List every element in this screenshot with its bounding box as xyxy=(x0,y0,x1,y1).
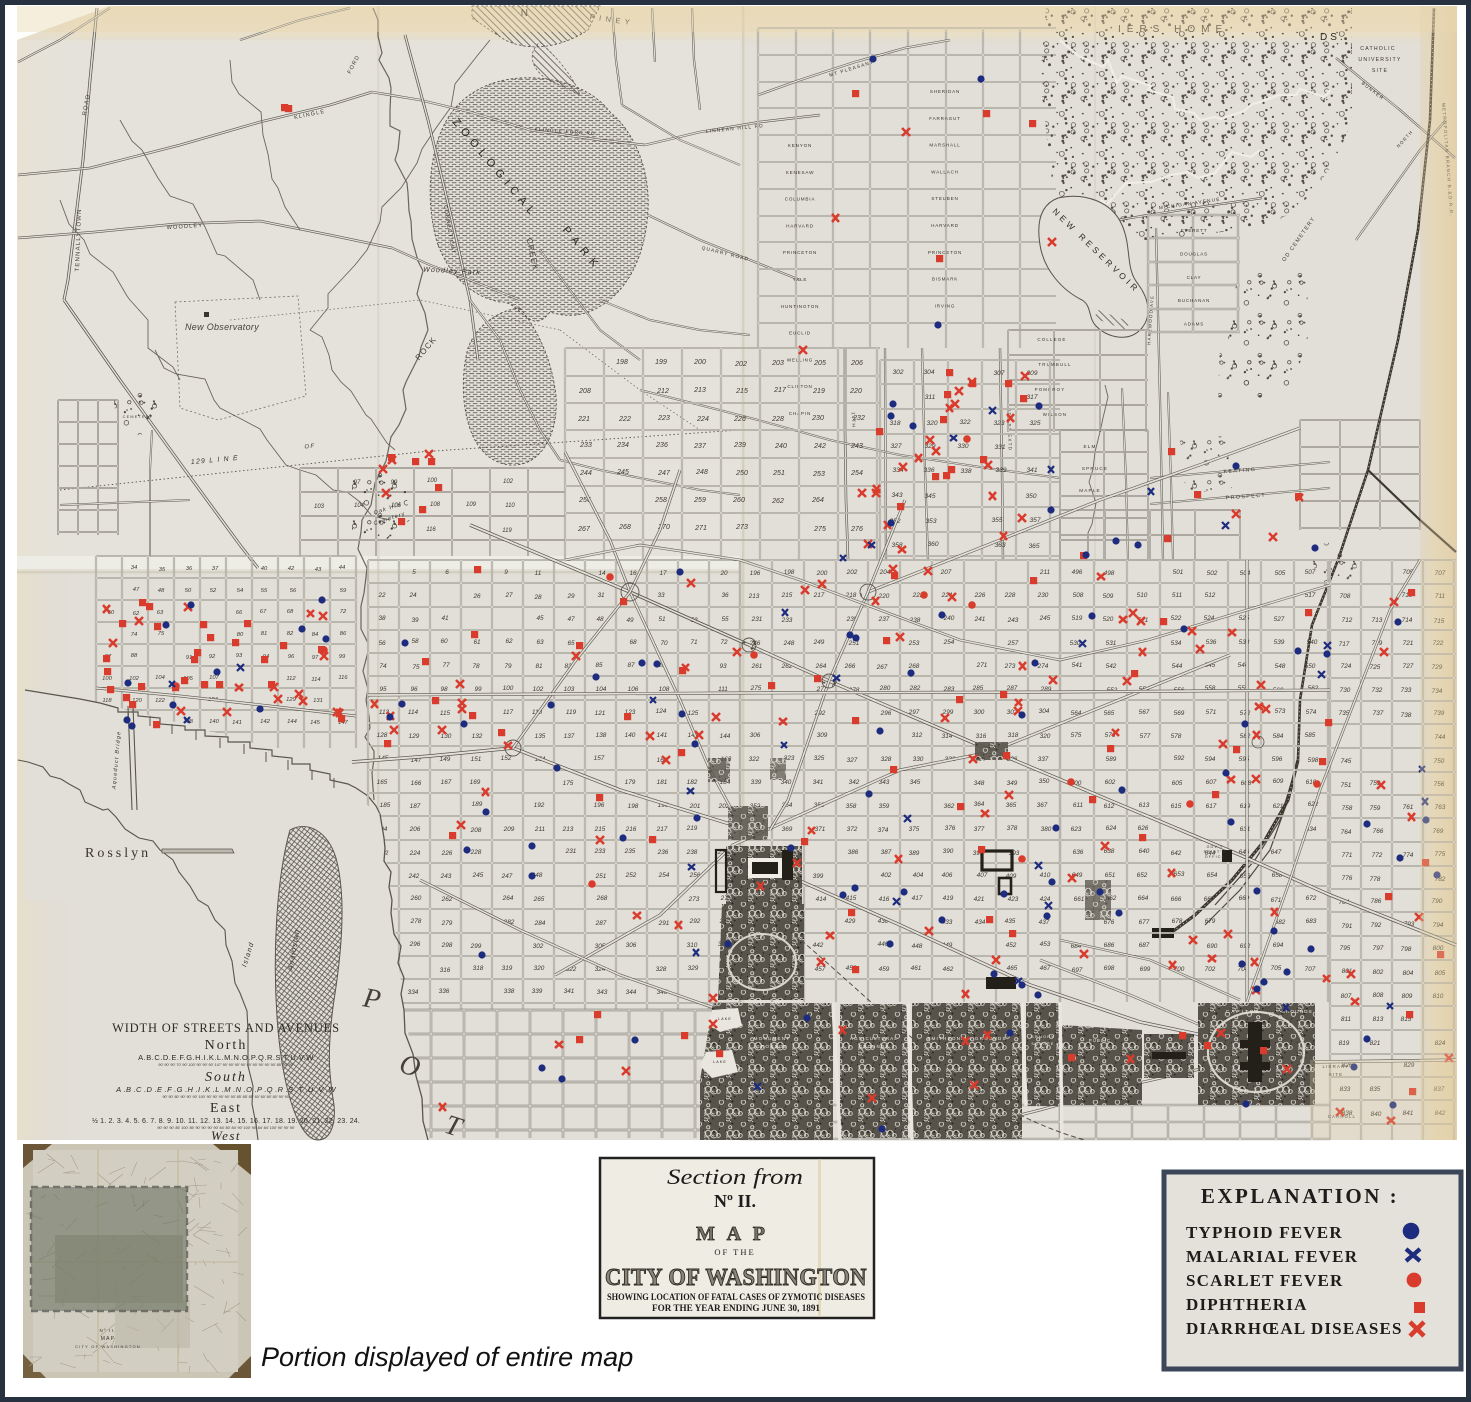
svg-text:90' 90' 80' 90' 90' 90' 100' 9: 90' 90' 80' 90' 90' 90' 100' 90' 90' 90'… xyxy=(162,1095,289,1099)
svg-text:167: 167 xyxy=(441,779,452,786)
svg-text:251: 251 xyxy=(595,873,607,880)
svg-text:Section from: Section from xyxy=(667,1164,803,1189)
svg-text:291: 291 xyxy=(658,920,670,927)
svg-text:234: 234 xyxy=(616,442,629,449)
svg-text:88: 88 xyxy=(131,653,138,659)
svg-text:36: 36 xyxy=(186,566,193,572)
svg-text:621: 621 xyxy=(1273,803,1284,810)
svg-text:DS.: DS. xyxy=(1320,32,1346,43)
svg-text:320: 320 xyxy=(534,965,545,972)
svg-text:166: 166 xyxy=(411,780,422,787)
svg-text:344: 344 xyxy=(626,989,637,996)
svg-text:233: 233 xyxy=(781,617,793,624)
svg-text:329: 329 xyxy=(688,965,699,972)
svg-text:260: 260 xyxy=(732,497,745,504)
svg-text:340: 340 xyxy=(781,779,792,786)
svg-text:672: 672 xyxy=(1306,895,1317,902)
svg-text:345: 345 xyxy=(924,493,935,500)
svg-text:FARRAGUT: FARRAGUT xyxy=(929,116,960,121)
svg-text:304: 304 xyxy=(1039,708,1050,715)
svg-text:615: 615 xyxy=(1171,803,1182,810)
svg-text:41: 41 xyxy=(441,615,449,622)
svg-text:267: 267 xyxy=(876,664,888,671)
svg-text:253: 253 xyxy=(812,471,825,478)
svg-text:55: 55 xyxy=(721,616,729,623)
svg-text:HARVARD: HARVARD xyxy=(931,223,959,228)
svg-text:807: 807 xyxy=(1341,993,1352,1000)
svg-text:631: 631 xyxy=(1240,826,1251,833)
svg-text:254: 254 xyxy=(850,470,863,477)
svg-text:96: 96 xyxy=(288,654,295,660)
svg-text:CATHOLIC: CATHOLIC xyxy=(1360,46,1395,52)
svg-text:302: 302 xyxy=(533,943,544,950)
svg-text:151: 151 xyxy=(471,756,482,763)
svg-text:364: 364 xyxy=(974,801,985,808)
svg-text:207: 207 xyxy=(940,569,952,576)
svg-text:222: 222 xyxy=(618,416,631,423)
svg-text:124: 124 xyxy=(656,708,667,715)
svg-text:264: 264 xyxy=(811,497,824,504)
svg-text:New Observatory: New Observatory xyxy=(185,322,259,332)
svg-text:343: 343 xyxy=(597,989,608,996)
svg-text:34: 34 xyxy=(131,565,137,571)
svg-text:244: 244 xyxy=(579,470,592,477)
svg-text:619: 619 xyxy=(1240,803,1251,810)
svg-text:211: 211 xyxy=(1039,569,1051,576)
svg-text:651: 651 xyxy=(1105,872,1116,879)
svg-text:200: 200 xyxy=(816,570,828,577)
svg-text:125: 125 xyxy=(688,710,699,717)
svg-text:320: 320 xyxy=(1040,733,1051,740)
svg-text:108: 108 xyxy=(430,502,441,508)
svg-text:280: 280 xyxy=(879,685,891,692)
svg-text:152: 152 xyxy=(501,755,512,762)
svg-text:75: 75 xyxy=(158,631,165,637)
svg-text:243: 243 xyxy=(440,873,452,880)
svg-text:531: 531 xyxy=(1106,640,1117,647)
svg-text:209: 209 xyxy=(503,826,515,833)
svg-text:75: 75 xyxy=(412,664,420,671)
svg-text:339: 339 xyxy=(532,988,543,995)
svg-text:404: 404 xyxy=(913,872,924,879)
svg-text:114: 114 xyxy=(311,677,320,683)
svg-text:157: 157 xyxy=(594,755,605,762)
svg-text:573: 573 xyxy=(1275,708,1286,715)
svg-text:809: 809 xyxy=(1402,993,1413,1000)
svg-text:251: 251 xyxy=(772,470,785,477)
svg-text:COLUMBIA: COLUMBIA xyxy=(785,197,816,202)
svg-text:24: 24 xyxy=(408,592,417,599)
svg-text:507: 507 xyxy=(1305,569,1316,576)
svg-text:369: 369 xyxy=(782,826,793,833)
svg-text:135: 135 xyxy=(535,733,546,740)
svg-text:358: 358 xyxy=(846,803,857,810)
svg-text:712: 712 xyxy=(1342,617,1353,624)
svg-text:534: 534 xyxy=(1171,640,1182,647)
svg-text:82: 82 xyxy=(287,631,294,637)
svg-text:336: 336 xyxy=(439,988,450,995)
svg-text:687: 687 xyxy=(1139,942,1150,949)
svg-text:97: 97 xyxy=(312,655,319,661)
svg-text:Portion displayed of entire ma: Portion displayed of entire map xyxy=(261,1342,633,1372)
svg-text:206: 206 xyxy=(409,826,421,833)
svg-text:686: 686 xyxy=(1104,942,1115,949)
svg-text:217: 217 xyxy=(813,592,825,599)
svg-text:233: 233 xyxy=(594,848,606,855)
svg-text:541: 541 xyxy=(1072,662,1083,669)
svg-text:DIPHTHERIA: DIPHTHERIA xyxy=(1186,1295,1308,1314)
svg-text:71: 71 xyxy=(690,639,698,646)
svg-text:85: 85 xyxy=(595,662,603,669)
svg-text:264: 264 xyxy=(502,895,514,902)
svg-text:727: 727 xyxy=(1403,663,1414,670)
svg-text:798: 798 xyxy=(1401,946,1412,953)
svg-text:692: 692 xyxy=(1240,943,1251,950)
svg-text:448: 448 xyxy=(912,943,923,950)
svg-text:213: 213 xyxy=(748,593,760,600)
svg-text:713: 713 xyxy=(1372,617,1383,624)
svg-text:386: 386 xyxy=(848,849,859,856)
svg-text:298: 298 xyxy=(441,942,453,949)
svg-text:ARMORY: ARMORY xyxy=(1031,1035,1055,1039)
svg-text:42: 42 xyxy=(288,566,295,572)
svg-text:287: 287 xyxy=(595,920,607,927)
svg-text:350: 350 xyxy=(1025,493,1036,500)
svg-text:319: 319 xyxy=(502,965,513,972)
svg-text:452: 452 xyxy=(1006,942,1017,949)
svg-text:374: 374 xyxy=(878,827,889,834)
svg-text:378: 378 xyxy=(1007,825,1018,832)
svg-text:348: 348 xyxy=(974,780,985,787)
svg-text:55: 55 xyxy=(261,588,268,594)
svg-text:802: 802 xyxy=(1373,969,1384,976)
svg-text:365: 365 xyxy=(1028,543,1039,550)
svg-text:323: 323 xyxy=(993,420,1004,427)
svg-text:TYPHOID FEVER: TYPHOID FEVER xyxy=(1186,1223,1343,1242)
svg-text:119: 119 xyxy=(502,528,512,534)
svg-text:636: 636 xyxy=(1073,849,1084,856)
svg-text:730: 730 xyxy=(1340,687,1351,694)
svg-text:341: 341 xyxy=(1026,467,1037,474)
svg-text:343: 343 xyxy=(891,492,902,499)
svg-text:699: 699 xyxy=(1140,966,1151,973)
svg-text:62: 62 xyxy=(505,638,513,645)
svg-text:140: 140 xyxy=(209,719,219,725)
svg-text:596: 596 xyxy=(1272,756,1283,763)
svg-text:198: 198 xyxy=(616,359,628,366)
svg-text:306: 306 xyxy=(626,942,637,949)
svg-text:299: 299 xyxy=(470,943,482,950)
svg-text:758: 758 xyxy=(1342,805,1353,812)
svg-text:245: 245 xyxy=(472,872,484,879)
svg-text:328: 328 xyxy=(881,756,892,763)
svg-text:677: 677 xyxy=(1139,919,1150,926)
svg-text:100: 100 xyxy=(503,685,514,692)
svg-text:17: 17 xyxy=(659,570,667,577)
svg-text:100: 100 xyxy=(427,478,438,484)
svg-text:104: 104 xyxy=(596,686,607,693)
svg-text:½ 1. 2. 3. 4. 5. 6. 7. 8. 9. 1: ½ 1. 2. 3. 4. 5. 6. 7. 8. 9. 10. 11. 12.… xyxy=(92,1117,360,1125)
svg-text:103: 103 xyxy=(314,504,325,510)
svg-text:266: 266 xyxy=(844,663,856,670)
svg-text:66: 66 xyxy=(236,610,243,616)
svg-text:WALLACH: WALLACH xyxy=(931,169,959,174)
svg-text:268: 268 xyxy=(618,524,631,531)
svg-text:PRINT'G: PRINT'G xyxy=(1204,850,1227,854)
svg-text:407: 407 xyxy=(977,872,988,879)
svg-text:49: 49 xyxy=(626,617,634,624)
svg-text:259: 259 xyxy=(693,497,706,504)
svg-text:OF THE: OF THE xyxy=(714,1247,755,1257)
svg-text:237: 237 xyxy=(693,443,707,450)
svg-text:821: 821 xyxy=(1370,1040,1381,1047)
svg-text:230: 230 xyxy=(1037,592,1049,599)
svg-text:362: 362 xyxy=(944,803,955,810)
svg-text:678: 678 xyxy=(1172,918,1183,925)
svg-text:56: 56 xyxy=(290,588,297,594)
svg-text:130: 130 xyxy=(441,733,452,740)
svg-text:72: 72 xyxy=(340,609,347,615)
svg-text:745: 745 xyxy=(1341,758,1352,765)
svg-text:389: 389 xyxy=(909,850,920,857)
svg-text:462: 462 xyxy=(943,966,954,973)
svg-text:68: 68 xyxy=(287,609,294,615)
svg-text:OF: OF xyxy=(304,444,315,451)
svg-text:West: West xyxy=(211,1128,241,1143)
svg-text:CITY OF WASHINGTON: CITY OF WASHINGTON xyxy=(605,1265,867,1291)
svg-text:797: 797 xyxy=(1373,945,1384,952)
svg-text:99: 99 xyxy=(474,686,482,693)
svg-text:589: 589 xyxy=(1106,756,1117,763)
svg-text:761: 761 xyxy=(1403,804,1414,811)
svg-text:241: 241 xyxy=(974,616,986,623)
svg-text:341: 341 xyxy=(813,779,824,786)
svg-text:211: 211 xyxy=(534,826,546,833)
svg-text:605: 605 xyxy=(1172,780,1183,787)
svg-text:AGRICULTURAL: AGRICULTURAL xyxy=(850,1036,898,1041)
svg-text:312: 312 xyxy=(912,732,923,739)
svg-text:199: 199 xyxy=(655,359,667,366)
svg-text:38: 38 xyxy=(378,615,386,622)
svg-text:617: 617 xyxy=(1206,803,1217,810)
svg-text:220: 220 xyxy=(878,593,890,600)
svg-text:318: 318 xyxy=(473,965,484,972)
svg-text:104: 104 xyxy=(155,675,165,681)
svg-text:609: 609 xyxy=(1273,778,1284,785)
svg-text:264: 264 xyxy=(815,663,827,670)
svg-text:SHERIDAN: SHERIDAN xyxy=(930,89,960,94)
svg-text:6: 6 xyxy=(445,569,449,576)
svg-text:813: 813 xyxy=(1373,1016,1384,1023)
svg-text:337: 337 xyxy=(1038,756,1049,763)
svg-text:109: 109 xyxy=(466,502,477,508)
svg-text:200: 200 xyxy=(693,359,706,366)
svg-text:584: 584 xyxy=(1273,733,1284,740)
svg-text:248: 248 xyxy=(695,469,708,476)
svg-text:367: 367 xyxy=(1037,802,1048,809)
svg-text:311: 311 xyxy=(925,394,936,401)
svg-text:224: 224 xyxy=(696,416,709,423)
svg-text:A.B.C.D.E.F.G.H.I.K.L.M.N.O.P.: A.B.C.D.E.F.G.H.I.K.L.M.N.O.P.Q.R.S.T.U.… xyxy=(138,1053,314,1062)
svg-text:122: 122 xyxy=(155,698,165,704)
svg-text:429: 429 xyxy=(845,918,856,925)
svg-text:725: 725 xyxy=(1370,664,1381,671)
svg-text:233: 233 xyxy=(579,442,592,449)
svg-text:544: 544 xyxy=(1172,663,1183,670)
svg-text:EXPLANATION :: EXPLANATION : xyxy=(1201,1184,1399,1208)
svg-text:242: 242 xyxy=(813,443,826,450)
svg-text:219: 219 xyxy=(686,825,698,832)
svg-text:375: 375 xyxy=(909,826,920,833)
svg-text:764: 764 xyxy=(1341,829,1352,836)
svg-text:766: 766 xyxy=(1373,828,1384,835)
svg-text:62: 62 xyxy=(133,611,140,617)
svg-text:FOR THE YEAR ENDING JUNE 30, 1: FOR THE YEAR ENDING JUNE 30, 1891 xyxy=(652,1304,820,1314)
svg-text:MARSHALL: MARSHALL xyxy=(929,143,960,148)
svg-text:58: 58 xyxy=(411,638,419,645)
svg-text:249: 249 xyxy=(813,639,825,646)
svg-text:380: 380 xyxy=(1041,826,1052,833)
svg-text:80: 80 xyxy=(237,632,244,638)
svg-text:145: 145 xyxy=(310,720,320,726)
svg-text:DOUGLAS: DOUGLAS xyxy=(1180,251,1208,256)
svg-text:112: 112 xyxy=(286,676,296,682)
svg-text:795: 795 xyxy=(1340,945,1351,952)
svg-text:223: 223 xyxy=(657,415,670,422)
svg-text:653: 653 xyxy=(1174,871,1185,878)
svg-text:457: 457 xyxy=(815,966,826,973)
svg-text:501: 501 xyxy=(1173,569,1184,576)
svg-text:189: 189 xyxy=(472,801,483,808)
svg-text:365: 365 xyxy=(1006,802,1017,809)
svg-text:99: 99 xyxy=(339,654,346,660)
svg-text:567: 567 xyxy=(1139,709,1150,716)
svg-text:103: 103 xyxy=(564,686,575,693)
svg-text:East: East xyxy=(210,1101,242,1116)
svg-text:423: 423 xyxy=(1008,896,1019,903)
svg-text:273: 273 xyxy=(1004,663,1016,670)
svg-text:459: 459 xyxy=(879,966,890,973)
svg-text:52: 52 xyxy=(210,588,217,594)
svg-text:571: 571 xyxy=(1206,709,1217,716)
svg-text:GROUNDS: GROUNDS xyxy=(1281,1009,1313,1015)
svg-text:330: 330 xyxy=(957,443,968,450)
svg-text:265: 265 xyxy=(533,896,545,903)
svg-text:179: 179 xyxy=(625,779,636,786)
svg-text:48: 48 xyxy=(158,588,165,594)
svg-text:MAP: MAP xyxy=(696,1223,774,1245)
svg-text:702: 702 xyxy=(1205,966,1216,973)
svg-text:251: 251 xyxy=(848,640,860,647)
svg-text:421: 421 xyxy=(974,896,985,903)
svg-text:95: 95 xyxy=(379,686,387,693)
svg-text:EUCLID: EUCLID xyxy=(789,331,811,336)
svg-text:245: 245 xyxy=(616,469,629,476)
svg-text:106: 106 xyxy=(628,686,639,693)
svg-text:208: 208 xyxy=(578,388,591,395)
svg-text:115: 115 xyxy=(440,710,451,717)
svg-text:79: 79 xyxy=(504,663,512,670)
svg-text:284: 284 xyxy=(534,920,546,927)
svg-text:215: 215 xyxy=(594,826,606,833)
svg-text:253: 253 xyxy=(908,640,920,647)
svg-text:47: 47 xyxy=(133,587,140,593)
svg-text:182: 182 xyxy=(687,779,698,786)
svg-text:232: 232 xyxy=(852,415,865,422)
svg-text:116: 116 xyxy=(338,675,348,681)
svg-text:224: 224 xyxy=(409,850,421,857)
svg-text:PRINCETON: PRINCETON xyxy=(783,250,817,255)
svg-text:9: 9 xyxy=(504,569,508,576)
svg-text:437: 437 xyxy=(1039,919,1050,926)
svg-text:86: 86 xyxy=(340,631,347,637)
svg-text:254: 254 xyxy=(943,639,955,646)
svg-text:236: 236 xyxy=(655,442,668,449)
svg-text:212: 212 xyxy=(656,388,669,395)
svg-text:243: 243 xyxy=(850,443,863,450)
svg-text:738: 738 xyxy=(1401,712,1412,719)
svg-text:640: 640 xyxy=(1139,848,1150,855)
svg-text:318: 318 xyxy=(1008,732,1019,739)
svg-text:217: 217 xyxy=(773,387,787,394)
svg-text:131: 131 xyxy=(313,698,323,704)
svg-text:228: 228 xyxy=(1004,592,1016,599)
svg-text:77: 77 xyxy=(442,662,450,669)
svg-text:93: 93 xyxy=(719,663,727,670)
svg-text:509: 509 xyxy=(1103,593,1114,600)
svg-text:522: 522 xyxy=(1171,615,1182,622)
svg-text:226: 226 xyxy=(441,850,453,857)
svg-text:273: 273 xyxy=(688,896,700,903)
svg-text:40: 40 xyxy=(261,566,268,572)
svg-text:511: 511 xyxy=(1172,592,1183,599)
svg-text:550: 550 xyxy=(1305,663,1316,670)
svg-text:302: 302 xyxy=(892,369,903,376)
svg-text:203: 203 xyxy=(771,360,784,367)
svg-text:325: 325 xyxy=(1029,420,1040,427)
svg-text:341: 341 xyxy=(564,988,575,995)
svg-text:714: 714 xyxy=(1402,617,1413,624)
svg-text:36: 36 xyxy=(721,592,729,599)
svg-text:732: 732 xyxy=(1372,687,1383,694)
svg-text:PRINCETON: PRINCETON xyxy=(928,250,962,255)
svg-text:37: 37 xyxy=(212,566,219,572)
svg-text:14: 14 xyxy=(598,570,606,577)
svg-text:804: 804 xyxy=(1403,970,1414,977)
svg-text:676: 676 xyxy=(1104,919,1115,926)
svg-text:683: 683 xyxy=(1306,918,1317,925)
svg-text:87: 87 xyxy=(627,662,635,669)
svg-text:129: 129 xyxy=(409,733,420,740)
svg-text:196: 196 xyxy=(750,570,761,577)
svg-text:442: 442 xyxy=(813,942,824,949)
svg-text:671: 671 xyxy=(1271,897,1282,904)
svg-text:22: 22 xyxy=(377,592,386,599)
svg-text:306: 306 xyxy=(750,732,761,739)
svg-text:140: 140 xyxy=(625,732,636,739)
svg-text:565: 565 xyxy=(1104,710,1115,717)
svg-text:278: 278 xyxy=(410,918,422,925)
svg-text:772: 772 xyxy=(1372,852,1383,859)
svg-text:63: 63 xyxy=(536,639,544,646)
svg-text:96: 96 xyxy=(410,686,418,693)
svg-text:213: 213 xyxy=(562,826,574,833)
svg-text:733: 733 xyxy=(1401,687,1412,694)
svg-text:GOV'T: GOV'T xyxy=(1207,845,1224,849)
svg-text:322: 322 xyxy=(749,756,760,763)
svg-text:MAP: MAP xyxy=(101,1336,115,1342)
svg-text:808: 808 xyxy=(1373,992,1384,999)
